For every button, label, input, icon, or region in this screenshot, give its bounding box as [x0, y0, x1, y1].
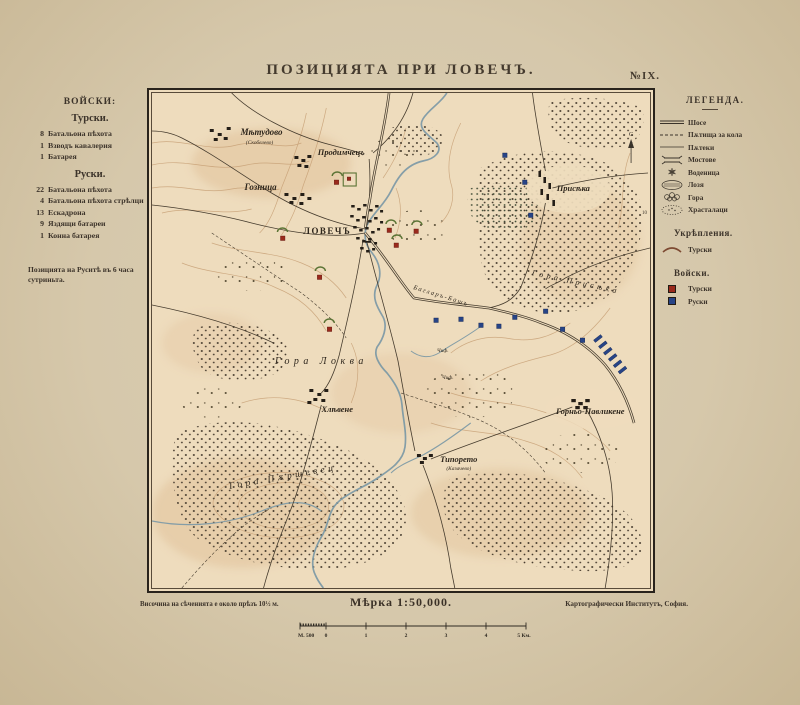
- vineyard-icon: [656, 179, 688, 191]
- map-label-chif-2: Чиф.: [442, 374, 454, 381]
- legend-item-footpath: Пѫтеки: [656, 141, 798, 154]
- redoubt-arc-icon: [656, 244, 688, 254]
- roster-turkish-heading: Турски.: [26, 113, 154, 124]
- village-tiporeto: [417, 454, 433, 464]
- roster-item: 13Ескадрона: [26, 207, 154, 219]
- russian-troop-square-icon: [656, 297, 688, 305]
- legend-item-turkish-troops: Турски: [656, 283, 798, 296]
- scale-bar-label: 5 Км.: [517, 633, 531, 639]
- page-title: ПОЗИЦИЯТА ПРИ ЛОВЕЧЪ.: [147, 62, 655, 79]
- chaussee-line-icon: [656, 117, 688, 127]
- map-label-goznitsa: Гозница: [243, 182, 277, 192]
- map-label-gornyo-pavlikene: Горньо-Павликене: [555, 406, 625, 416]
- watermill-icon: [656, 167, 688, 177]
- scanned-historical-map-page: { "page": { "title": "ПОЗИЦИЯТА ПРИ ЛОВЕ…: [0, 0, 800, 705]
- map-label-gora-lokva: Гора Локва: [274, 356, 368, 367]
- legend-item-russian-troops: Руски: [656, 295, 798, 308]
- map-label-baglar-bash: Багларъ-Башъ: [411, 284, 469, 308]
- roster-item: 1Взводъ кавалерия: [26, 140, 154, 152]
- roster-russian-heading: Руски.: [26, 169, 154, 180]
- roster-item: 9Яздящи батареи: [26, 218, 154, 230]
- legend-item-turkish-redoubt: Турски: [656, 243, 798, 256]
- footpath-line-icon: [656, 142, 688, 152]
- shrubs-icon: [656, 204, 688, 216]
- roster-item: 22Батальона пѣхота: [26, 184, 154, 196]
- map-inner-border: С 10 Мѣтудово (Скобелево) Продимчецъ Гоз…: [151, 92, 651, 589]
- legend-item-cart-road: Пѫтища за кола: [656, 129, 798, 142]
- map-label-chif-1: Чиф.: [437, 347, 449, 354]
- roster-heading: ВОЙСКИ:: [26, 97, 154, 107]
- scale-bar-label: 1: [365, 633, 368, 639]
- legend-item-forest: Гора: [656, 191, 798, 204]
- village-hlevene: [307, 389, 328, 404]
- map-label-priseka: Присѣка: [556, 183, 591, 193]
- compass-label: С: [629, 131, 633, 138]
- scale-bar: М. 500 0 1 2 3 4 5 Км.: [296, 620, 534, 645]
- fortifications-heading: Укрѣпления.: [674, 228, 798, 238]
- topographic-map: С 10 Мѣтудово (Скобелево) Продимчецъ Гоз…: [152, 93, 650, 588]
- legend-panel: ЛЕГЕНДА. Шосе Пѫтища за кола Пѫтеки Мост…: [656, 95, 798, 308]
- north-arrow: С: [628, 131, 634, 163]
- publisher: Картографически Институтъ, София.: [565, 600, 688, 608]
- scale-bar-label: 0: [325, 633, 328, 639]
- map-label-skobelevo: (Скобелево): [246, 139, 273, 146]
- legend-divider: [702, 109, 718, 110]
- legend-item-watermill: Воденица: [656, 166, 798, 179]
- roster-item: 4Батальона пѣхота стрѣлци: [26, 195, 154, 207]
- spot-height: 10: [642, 211, 647, 216]
- roster-item: 1Конна батарея: [26, 230, 154, 242]
- troops-roster-panel: ВОЙСКИ: Турски. 8Батальона пѣхота 1Взвод…: [26, 97, 154, 284]
- map-frame: С 10 Мѣтудово (Скобелево) Продимчецъ Гоз…: [147, 88, 655, 593]
- legend-item-bridge: Мостове: [656, 154, 798, 167]
- scale-bar-label: М. 500: [298, 633, 314, 639]
- scale-bar-label: 3: [445, 633, 448, 639]
- position-time-note: Позицията на Руситѣ въ 6 часа сутриньта.: [26, 265, 146, 284]
- roster-item: 8Батальона пѣхота: [26, 128, 154, 140]
- map-label-tiporeto: Типорето: [440, 454, 477, 464]
- roster-item: 1Батарея: [26, 151, 154, 163]
- legend-heading: ЛЕГЕНДА.: [686, 95, 798, 105]
- lovech-bridge: [365, 241, 371, 243]
- sheet-number: №IX.: [630, 70, 660, 82]
- map-label-prodimchets: Продимчецъ: [317, 147, 365, 157]
- bridge-icon: [656, 155, 688, 165]
- turkish-troop-square-icon: [656, 285, 688, 293]
- map-label-lovech: ЛОВЕЧЪ: [303, 226, 351, 236]
- map-label-hlevene: Хлѣвене: [321, 404, 354, 414]
- map-label-metudovo: Мѣтудово: [240, 127, 283, 137]
- russian-column: [594, 335, 627, 374]
- scale-bar-label: 2: [405, 633, 408, 639]
- map-label-kazachevo: (Казачево): [446, 465, 471, 472]
- cart-road-line-icon: [656, 130, 688, 140]
- legend-item-vineyard: Лозя: [656, 179, 798, 192]
- legend-item-chaussee: Шосе: [656, 116, 798, 129]
- troops-heading: Войски.: [674, 268, 798, 278]
- scale-bar-label: 4: [485, 633, 488, 639]
- forest-icon: [656, 191, 688, 203]
- legend-item-shrubs: Храсталаци: [656, 204, 798, 217]
